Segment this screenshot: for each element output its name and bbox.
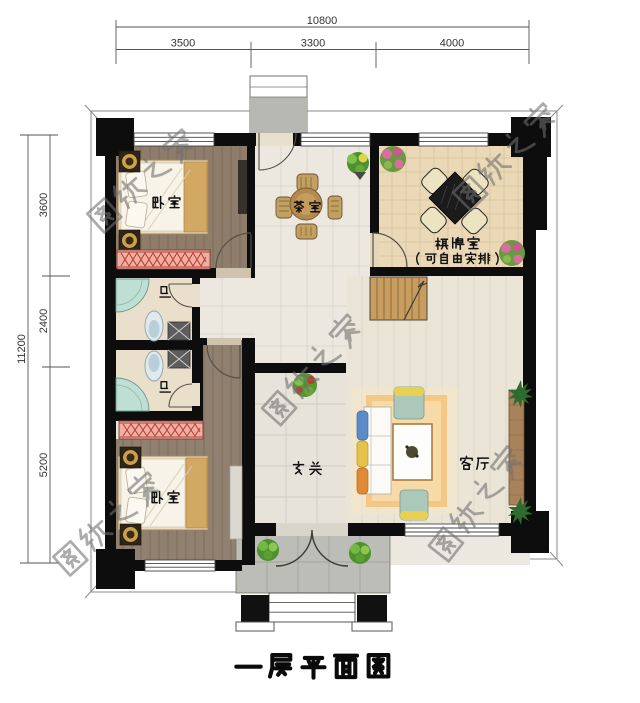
svg-text:4000: 4000 (440, 38, 464, 50)
svg-text:2400: 2400 (38, 309, 50, 333)
svg-text:3300: 3300 (301, 38, 325, 50)
svg-text:11200: 11200 (16, 334, 28, 364)
svg-text:3600: 3600 (38, 193, 50, 217)
svg-text:3500: 3500 (171, 38, 195, 50)
svg-text:10800: 10800 (307, 15, 338, 27)
svg-text:5200: 5200 (38, 453, 50, 477)
